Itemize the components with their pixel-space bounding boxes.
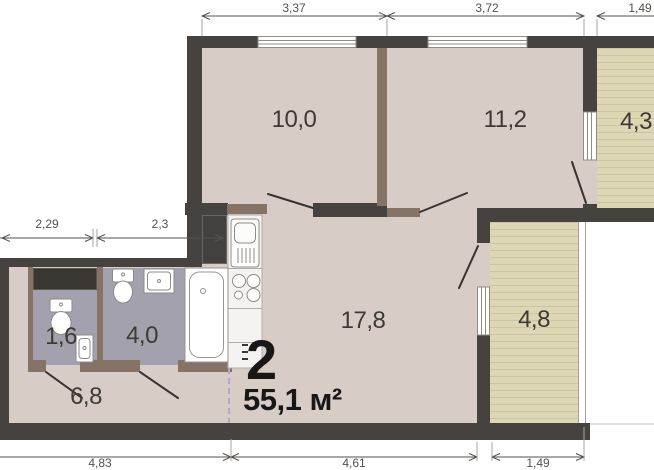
sink-icon	[76, 335, 93, 362]
hall-label: 6,8	[70, 383, 102, 411]
dim-bottom-1: 4,83	[88, 456, 111, 470]
dim-left-1: 2,29	[35, 217, 58, 231]
floor-plan: 10,0 11,2 4,3 17,8 4,8 1,6 4,0 6,8 2 55,…	[0, 0, 654, 470]
kitchen-sink-icon	[231, 219, 259, 267]
unit-area: 55,1 м²	[243, 384, 342, 415]
balcony-48-label: 4,8	[518, 306, 550, 334]
wc-label: 1,6	[45, 323, 77, 351]
bath-label: 4,0	[126, 322, 158, 350]
door-openings	[477, 160, 597, 287]
unit-number: 2	[246, 332, 276, 388]
dim-left-2: 2,3	[152, 217, 169, 231]
dim-bottom-2: 4,61	[342, 456, 365, 470]
dim-top-1: 3,37	[282, 1, 305, 15]
dim-top-2: 3,72	[475, 1, 498, 15]
balcony-43-label: 4,3	[620, 108, 652, 136]
dim-bottom-3: 1,49	[526, 456, 549, 470]
bathtub-icon	[185, 268, 228, 362]
sink-icon	[144, 269, 174, 293]
extension-lines	[93, 19, 597, 461]
dim-top-3: 1,49	[628, 1, 651, 15]
window-icon	[258, 37, 597, 336]
room-10-label: 10,0	[272, 106, 317, 134]
toilet-icon	[113, 269, 134, 303]
room-11-label: 11,2	[484, 106, 527, 134]
room-17-label: 17,8	[341, 307, 386, 335]
